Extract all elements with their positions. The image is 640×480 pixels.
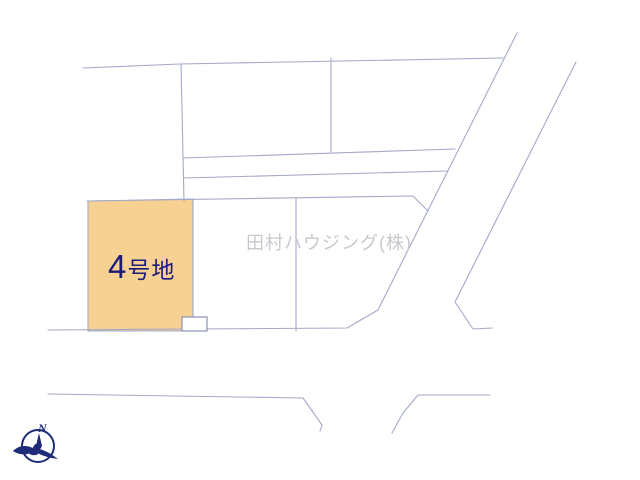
strip-line-lower: [184, 171, 448, 178]
compass-icon: N: [12, 418, 64, 468]
watermark-text: 田村ハウジング(株): [246, 229, 412, 255]
compass-bird: [13, 444, 58, 459]
lot-layout-diagram: 田村ハウジング(株) 4号地 N: [0, 0, 640, 480]
divider-left-vertical: [181, 64, 184, 201]
lot4-notch-box: [182, 317, 207, 331]
compass-north-letter: N: [37, 421, 48, 435]
strip-line-upper: [183, 149, 455, 158]
road-bottom-edge-left: [48, 394, 322, 431]
boundary-top-line: [83, 58, 503, 68]
road-bottom-edge-right: [392, 395, 490, 433]
road-right-edge: [455, 62, 576, 329]
highlighted-lot-label: 4号地: [108, 250, 175, 287]
